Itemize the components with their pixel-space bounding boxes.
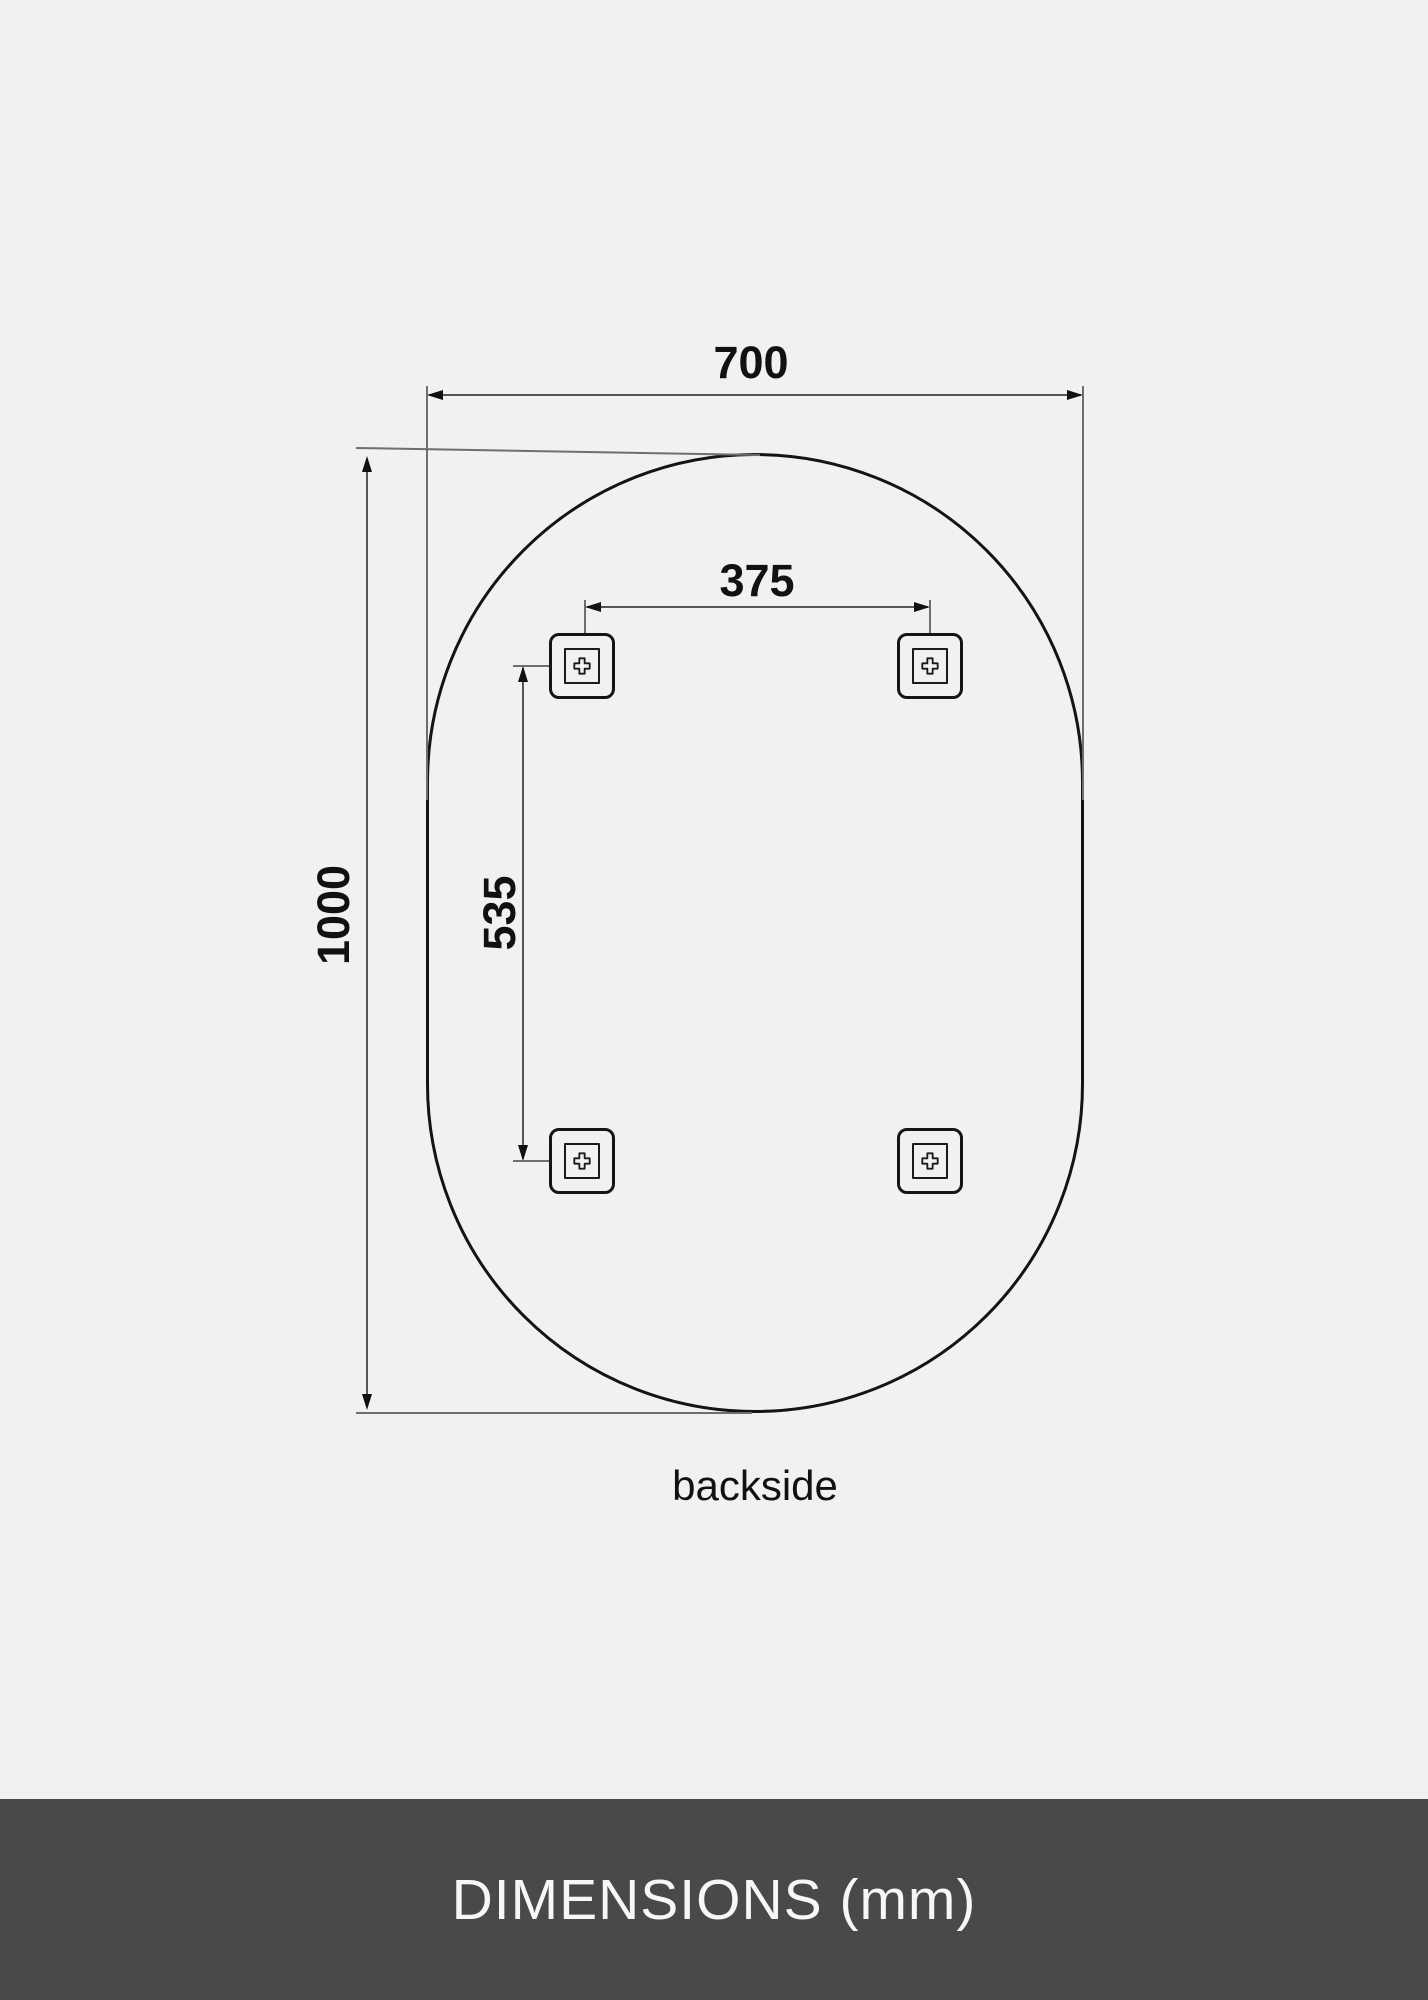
height-dimension-label: 1000	[308, 865, 360, 965]
height-extension-line-bottom	[356, 1412, 752, 1414]
view-label: backside	[672, 1462, 838, 1510]
spacing-v-dimension-label: 535	[474, 875, 526, 950]
diagram-canvas: 700 1000 375 535	[0, 0, 1428, 2000]
footer-title: DIMENSIONS (mm)	[452, 1867, 977, 1933]
arrow-down-icon	[362, 1394, 372, 1410]
screw-cross-icon	[919, 1150, 941, 1172]
arrow-right-icon	[914, 602, 930, 612]
bracket-inner-plate	[912, 1143, 948, 1179]
screw-cross-icon	[919, 655, 941, 677]
mounting-bracket-top-right	[897, 633, 963, 699]
bracket-inner-plate	[564, 648, 600, 684]
screw-cross-icon	[571, 1150, 593, 1172]
arrow-up-icon	[518, 666, 528, 682]
height-dimension-line	[366, 459, 368, 1407]
height-extension-line-top	[356, 447, 760, 456]
width-dimension-label: 700	[713, 337, 788, 389]
arrow-up-icon	[362, 456, 372, 472]
arrow-left-icon	[585, 602, 601, 612]
mounting-bracket-bottom-left	[549, 1128, 615, 1194]
mounting-bracket-top-left	[549, 633, 615, 699]
footer-bar: DIMENSIONS (mm)	[0, 1799, 1428, 2000]
width-dimension-line	[429, 394, 1081, 396]
width-extension-line-right	[1082, 386, 1084, 800]
arrow-right-icon	[1067, 390, 1083, 400]
bracket-inner-plate	[912, 648, 948, 684]
screw-cross-icon	[571, 655, 593, 677]
mounting-bracket-bottom-right	[897, 1128, 963, 1194]
arrow-down-icon	[518, 1145, 528, 1161]
spacing-h-dimension-label: 375	[719, 555, 794, 607]
arrow-left-icon	[427, 390, 443, 400]
bracket-inner-plate	[564, 1143, 600, 1179]
